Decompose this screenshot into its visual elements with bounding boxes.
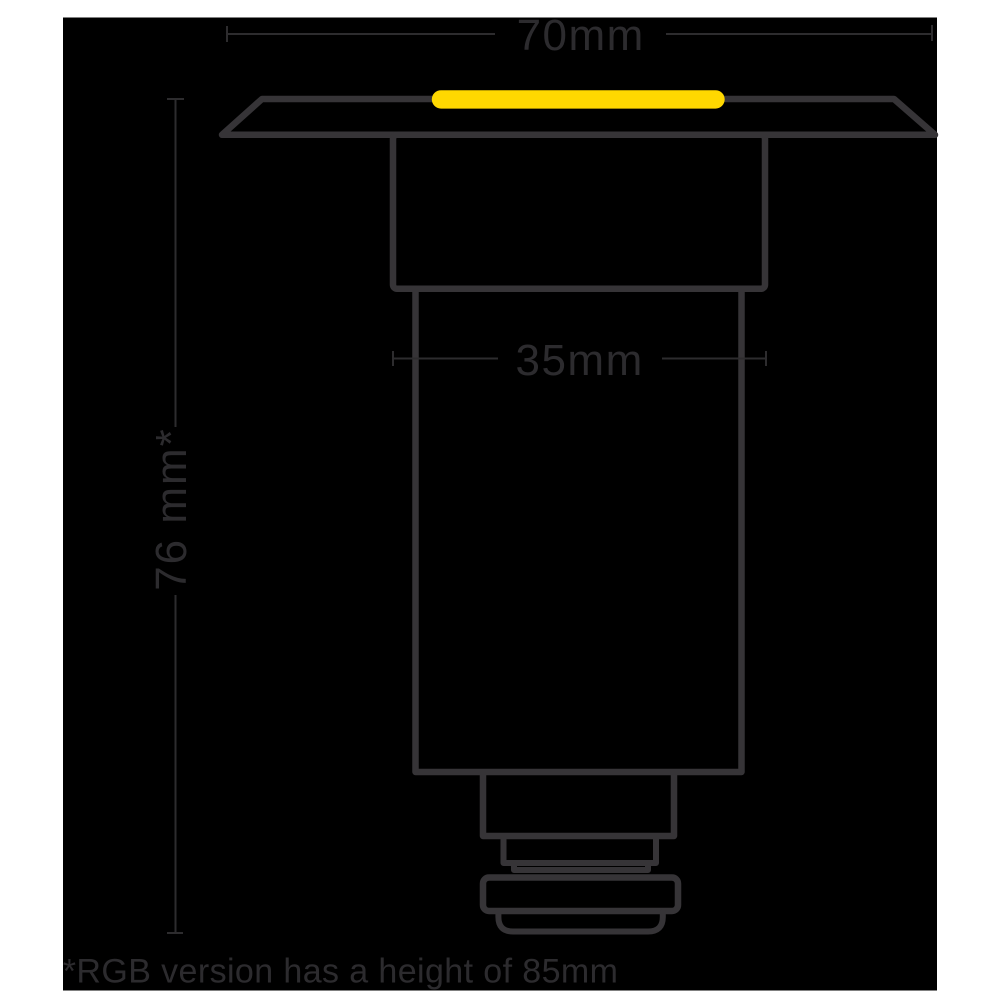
svg-text:70mm: 70mm xyxy=(517,11,645,60)
svg-text:35mm: 35mm xyxy=(515,336,643,385)
svg-text:76 mm*: 76 mm* xyxy=(147,427,196,591)
svg-text:*RGB version has a height of 8: *RGB version has a height of 85mm xyxy=(63,953,619,991)
